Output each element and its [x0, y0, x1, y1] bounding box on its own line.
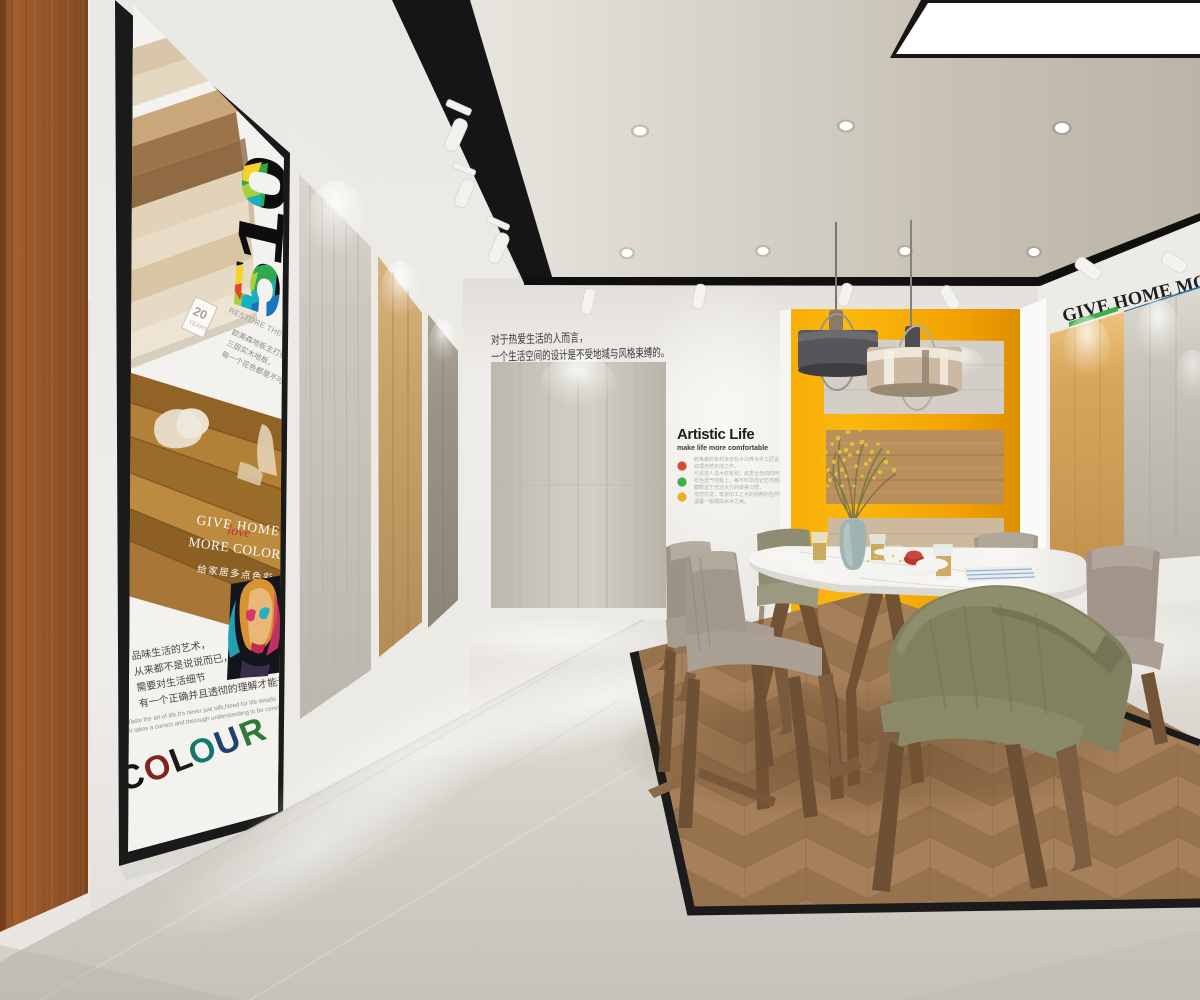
svg-text:Artistic Life: Artistic Life: [677, 426, 754, 443]
svg-text:对于热爱生活的人而言，: 对于热爱生活的人而言，: [491, 329, 588, 347]
svg-text:藏概过于光洁大方的审美习惯，: 藏概过于光洁大方的审美习惯，: [694, 484, 764, 491]
svg-text:温馨一般模拟水木之美。: 温馨一般模拟水木之美。: [694, 498, 749, 505]
svg-text:make life more comfortable: make life more comfortable: [677, 445, 768, 452]
svg-text:松色透气地板上，每不时添加记忆地板间，: 松色透气地板上，每不时添加记忆地板间，: [694, 477, 789, 484]
svg-text:欧美森的板材来自松木白桦木手工匠设计，: 欧美森的板材来自松木白桦木手工匠设计，: [694, 456, 789, 463]
svg-text:纹理自然天成之作，: 纹理自然天成之作，: [694, 463, 739, 470]
